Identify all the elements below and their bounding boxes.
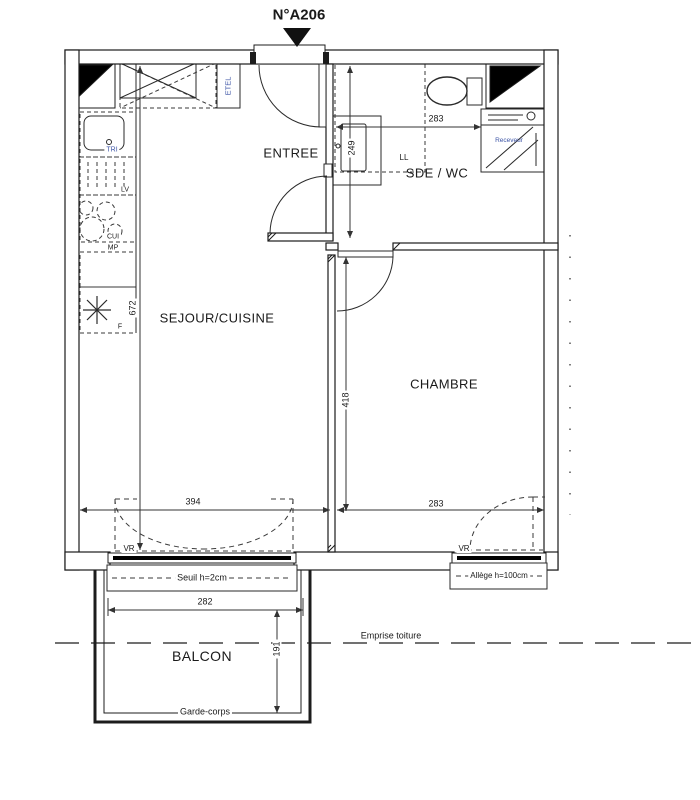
washbasin-icon [333, 116, 381, 185]
room-label-chambre: CHAMBRE [408, 378, 480, 391]
fridge-star-icon [83, 296, 111, 324]
sink-icon [84, 116, 124, 150]
entry-opening [250, 45, 329, 64]
room-label-entree: ENTREE [261, 147, 320, 160]
emprise-toiture-label: Emprise toiture [359, 632, 424, 641]
garde-corps-label: Garde-corps [178, 708, 232, 717]
allege-label: Allège h=100cm [468, 572, 530, 580]
dim-sejour-window-width: 394 [183, 498, 202, 507]
entrance-arrow-icon [283, 28, 311, 47]
dim-sejour-height: 672 [129, 298, 138, 317]
cuisson-label: CUI [105, 234, 121, 241]
dim-balcon-depth: 191 [273, 639, 282, 658]
toilet-icon [427, 77, 482, 105]
volet-roulant-sejour-label: VR [121, 545, 136, 553]
etel-label: ETEL [224, 75, 232, 98]
lave-linge-label: LL [398, 154, 411, 162]
dim-chambre-width: 283 [426, 500, 445, 509]
frigo-label: F [116, 324, 124, 331]
lave-vaisselle-label: LV [119, 187, 131, 194]
dim-sde-depth: 249 [348, 138, 357, 157]
wall-cabinet [120, 63, 240, 108]
dim-balcon-width: 282 [195, 598, 214, 607]
walls [65, 50, 558, 570]
duct-shaft-icon [67, 62, 545, 108]
meuble-plan-label: MP [106, 245, 121, 252]
unit-label: N°A206 [273, 8, 326, 23]
sejour-door [270, 164, 332, 233]
room-label-balcon: BALCON [170, 649, 234, 663]
dim-sde-width: 283 [426, 115, 445, 124]
receveur-label: Receveur [495, 138, 523, 145]
floor-plan: N°A206 ENTREE SDE / WC SEJOUR/CUISINE CH… [0, 0, 700, 800]
entry-door [259, 64, 326, 127]
seuil-label: Seuil h=2cm [175, 574, 229, 583]
volet-roulant-chambre-label: VR [456, 545, 471, 553]
room-label-sejour-cuisine: SEJOUR/CUISINE [158, 312, 277, 325]
chambre-door [337, 251, 393, 311]
dim-chambre-height: 418 [342, 390, 351, 409]
room-label-sde-wc: SDE / WC [404, 167, 470, 180]
tri-label: TRI [104, 147, 119, 154]
